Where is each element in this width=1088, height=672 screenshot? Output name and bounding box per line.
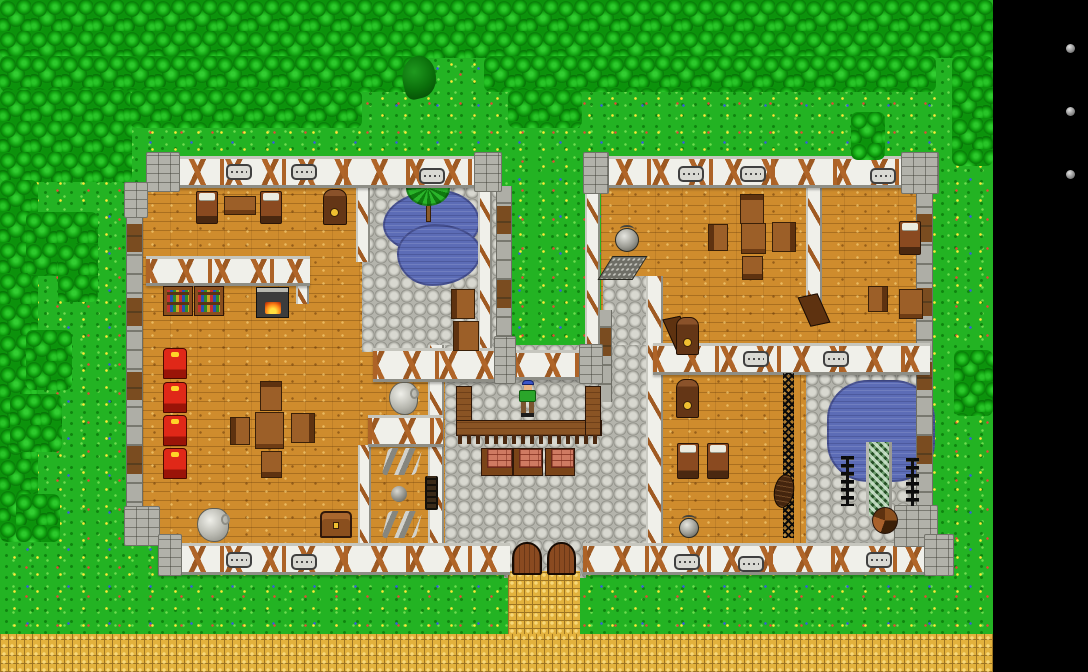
bed-4: [677, 443, 699, 479]
window-grille: [679, 561, 695, 563]
bed-pillow: [902, 223, 918, 231]
chair-3: [868, 286, 888, 312]
timber-wall-8: [158, 543, 510, 575]
window-grille: [875, 175, 891, 177]
tree-cluster-8: [851, 112, 885, 160]
stone-corner-7: [901, 152, 939, 194]
stone-corner-3: [124, 506, 160, 546]
gray-rolls-2: [382, 511, 423, 538]
arched-door[interactable]: [512, 542, 542, 575]
red-throne-chair-4: [163, 448, 187, 479]
red-throne-chair-3: [163, 415, 187, 446]
tree-cluster-13: [10, 394, 62, 452]
villager-character[interactable]: [516, 380, 540, 420]
chair-2: [742, 256, 763, 280]
clock-face: [683, 401, 692, 410]
bed-2: [260, 191, 282, 224]
avatar-legs: [521, 402, 534, 417]
grandfather-clock: [323, 189, 347, 225]
dark-trellis: [783, 373, 794, 538]
spike-fence: [841, 456, 854, 506]
pitcher-handle: [410, 388, 419, 399]
bed-pillow: [710, 445, 726, 453]
stall-top: [487, 449, 512, 468]
stove-fire: [265, 302, 281, 314]
window-11: [674, 554, 700, 570]
window-grille: [828, 358, 844, 360]
cauldron: [615, 228, 639, 252]
spiral-staircase[interactable]: [872, 507, 898, 534]
stone-corner-9: [924, 534, 954, 576]
arched-door-2[interactable]: [547, 542, 576, 575]
gray-rolls: [382, 448, 423, 475]
window-4: [678, 166, 704, 182]
spike-fence-2: [906, 458, 919, 506]
chair: [230, 417, 250, 445]
tree-cluster-15: [954, 350, 993, 416]
bed-3: [899, 221, 921, 255]
chair: [261, 451, 282, 478]
bed-pillow: [680, 445, 696, 453]
chair-2: [451, 289, 475, 319]
stone-wall: [126, 184, 143, 520]
market-stall-table-3: [545, 448, 575, 476]
window-7: [743, 351, 769, 367]
bed-pillow: [199, 193, 215, 201]
status-panel: [993, 0, 1088, 672]
timber-wall-5: [646, 276, 663, 545]
tree-cluster-6: [130, 90, 362, 128]
stone-corner-10: [494, 336, 516, 384]
window-grille: [683, 173, 699, 175]
chair-4: [708, 224, 728, 251]
tree-cluster-3: [484, 56, 936, 92]
tree-cluster: [0, 0, 993, 58]
window-9: [226, 552, 252, 568]
cauldron-handle: [682, 515, 696, 523]
window-grille: [748, 358, 764, 360]
chest[interactable]: [320, 511, 352, 538]
tree-cluster-11: [58, 244, 98, 302]
timber-wall-7: [358, 445, 371, 545]
timber-wall-2: [478, 186, 492, 352]
bookshelf: [163, 286, 193, 316]
clock-face: [683, 338, 692, 347]
timber-wall-3: [146, 256, 310, 286]
cauldron-2: [679, 518, 699, 538]
timber-wall-3: [585, 190, 600, 352]
market-stall-table: [481, 448, 513, 476]
book-rows: [198, 290, 220, 312]
tree-cluster-4: [952, 56, 993, 166]
stone-corner-5: [474, 152, 502, 192]
ladder[interactable]: [425, 476, 438, 510]
market-stall-table-2: [513, 448, 543, 476]
chair: [260, 381, 282, 411]
side-table: [224, 196, 256, 215]
chair-crest: [171, 352, 179, 357]
hedge-column: [866, 442, 892, 516]
bed-5: [707, 443, 729, 479]
counter-fringe: [458, 435, 600, 444]
stone-corner-2: [124, 182, 148, 218]
window-5: [740, 166, 766, 182]
panel-orb-button[interactable]: [1066, 44, 1075, 53]
market-counter: [585, 386, 601, 436]
tree-cluster-5: [0, 90, 132, 182]
chair-crest: [171, 419, 179, 424]
stone-corner-6: [583, 152, 609, 194]
brick-path: [508, 571, 580, 637]
window-grille: [743, 563, 759, 565]
chair-2: [772, 222, 796, 252]
chair-2: [740, 194, 764, 224]
window-2: [291, 164, 317, 180]
grandfather-clock-2: [676, 317, 699, 355]
timber-wall-7: [368, 415, 443, 447]
game-screen: [0, 0, 1088, 672]
tree-cluster-14: [16, 494, 60, 542]
tree-cluster-2: [0, 56, 425, 92]
desk: [899, 289, 923, 319]
brick-path-2: [0, 634, 993, 672]
timber-wall: [356, 186, 370, 262]
window-grille: [871, 559, 887, 561]
book-rows: [167, 290, 189, 312]
stone-corner: [146, 152, 180, 192]
stall-top: [551, 449, 574, 468]
window-10: [291, 554, 317, 570]
chest-latch: [333, 522, 339, 529]
bookshelf-2: [194, 286, 224, 316]
window: [226, 164, 252, 180]
tree-cluster-7: [508, 90, 582, 128]
window-3: [419, 168, 445, 184]
window-12: [738, 556, 764, 572]
table: [255, 412, 284, 449]
tree-cluster-12: [26, 330, 72, 390]
chair-crest: [171, 452, 179, 457]
chair-crest: [171, 386, 179, 391]
grandfather-clock-3: [676, 379, 699, 418]
timber-wall-4: [373, 348, 513, 382]
gray-pitcher: [389, 382, 418, 415]
window-13: [866, 552, 892, 568]
stove: [256, 287, 289, 318]
bed-pillow: [263, 193, 279, 201]
cauldron-handle: [620, 225, 634, 233]
window-6: [870, 168, 896, 184]
stone-pillar: [496, 186, 512, 354]
red-throne-chair-2: [163, 382, 187, 413]
window-grille: [231, 559, 247, 561]
window-grille: [424, 175, 440, 177]
market-counter: [456, 420, 602, 436]
table-2: [741, 223, 766, 254]
window-grille: [296, 561, 312, 563]
clock-face: [330, 208, 339, 217]
stall-top: [519, 449, 542, 468]
stone-corner-4: [158, 534, 182, 576]
window-grille: [231, 171, 247, 173]
window-grille: [745, 173, 761, 175]
chair: [291, 413, 315, 443]
window-8: [823, 351, 849, 367]
stone-corner-11: [579, 344, 603, 384]
pitcher-handle: [221, 514, 230, 525]
avatar-torso: [519, 390, 536, 402]
red-throne-chair: [163, 348, 187, 379]
panel-orb-button-2[interactable]: [1066, 107, 1075, 116]
bed: [196, 191, 218, 224]
window-grille: [296, 171, 312, 173]
panel-orb-button-3[interactable]: [1066, 170, 1075, 179]
chair-3: [453, 321, 479, 351]
cannonball: [391, 486, 407, 502]
gray-pitcher-2: [197, 508, 229, 542]
